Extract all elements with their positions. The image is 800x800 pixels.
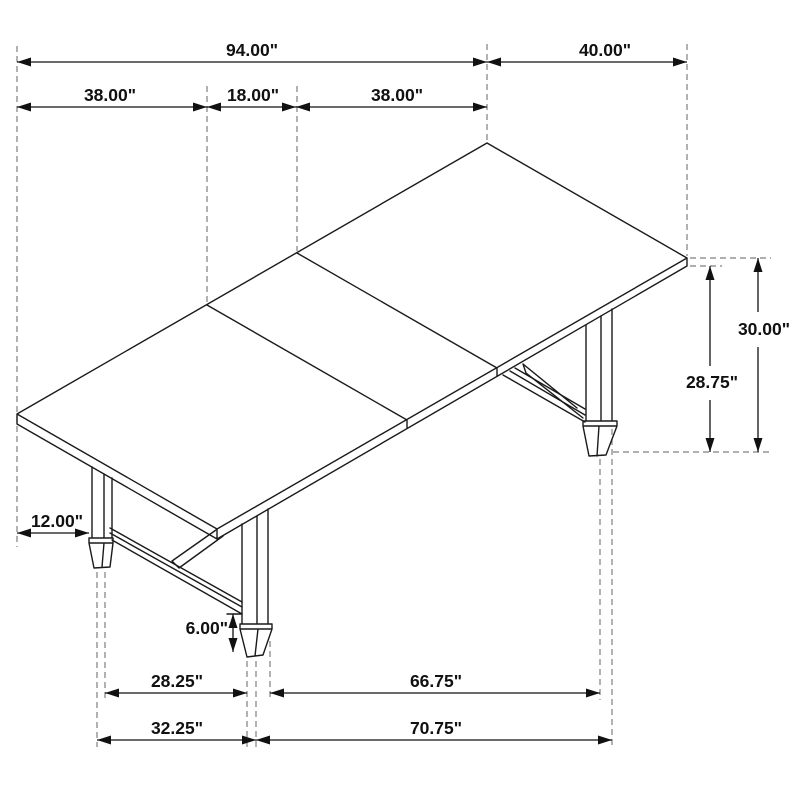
dimension-lines (17, 62, 758, 740)
table-dimension-diagram: 94.00" 40.00" 38.00" 18.00" 38.00" 30.00… (0, 0, 800, 800)
dim-label-18: 18.00" (227, 85, 279, 105)
right-trestle-stretcher (503, 368, 585, 422)
extension-lines-path (17, 44, 771, 747)
table-drawing (17, 143, 687, 657)
dim-label-7075: 70.75" (410, 718, 462, 738)
dim-label-12: 12.00" (31, 511, 83, 531)
left-trestle-front-leg (240, 509, 272, 657)
dim-label-94: 94.00" (226, 40, 278, 60)
dim-label-3225: 32.25" (151, 718, 203, 738)
dimension-labels: 94.00" 40.00" 38.00" 18.00" 38.00" 30.00… (31, 40, 790, 738)
dim-label-2875: 28.75" (686, 372, 738, 392)
dim-label-2825: 28.25" (151, 671, 203, 691)
extension-lines (17, 44, 771, 747)
dim-label-6: 6.00" (186, 618, 228, 638)
dim-label-6675: 66.75" (410, 671, 462, 691)
dim-label-40: 40.00" (579, 40, 631, 60)
left-trestle-back-leg (89, 467, 113, 568)
left-trestle-brace (172, 530, 223, 568)
dim-label-38b: 38.00" (371, 85, 423, 105)
dimension-diagram-page: 94.00" 40.00" 38.00" 18.00" 38.00" 30.00… (0, 0, 800, 800)
left-trestle-stretcher (110, 528, 242, 614)
dim-label-30: 30.00" (738, 319, 790, 339)
dim-label-38a: 38.00" (84, 85, 136, 105)
